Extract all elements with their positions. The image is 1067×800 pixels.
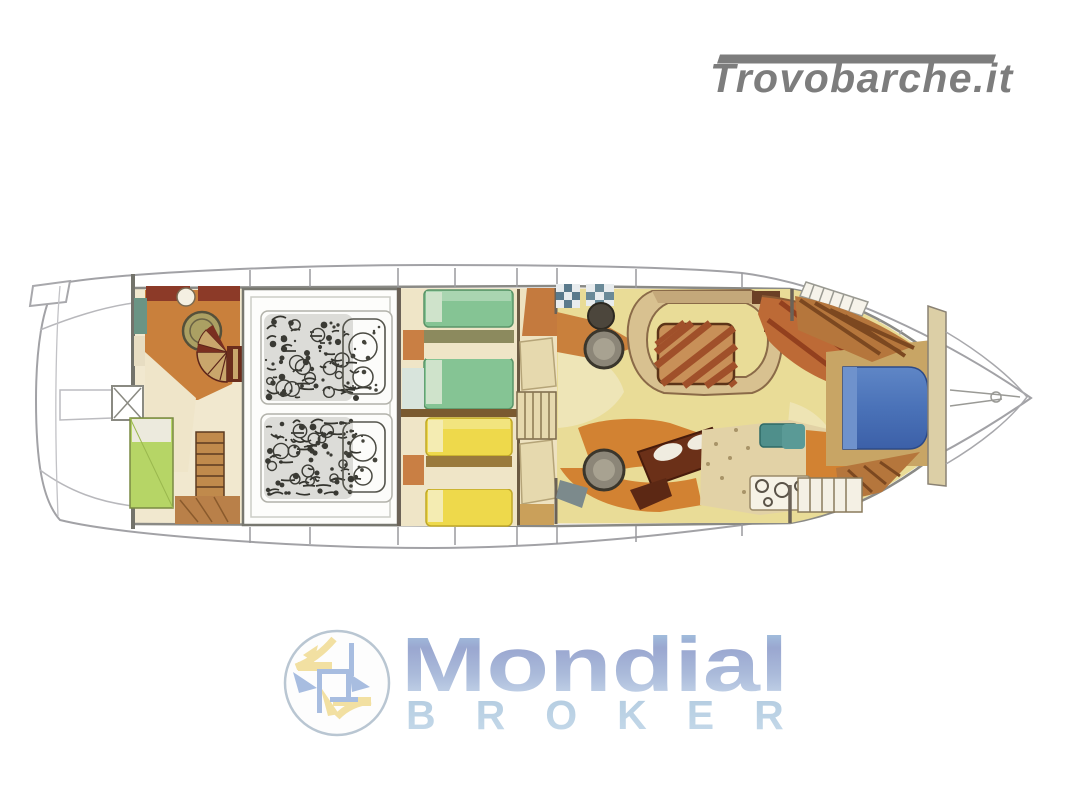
svg-text:BROKER: BROKER (406, 692, 824, 738)
svg-text:Trovobarche.it: Trovobarche.it (710, 55, 1015, 101)
